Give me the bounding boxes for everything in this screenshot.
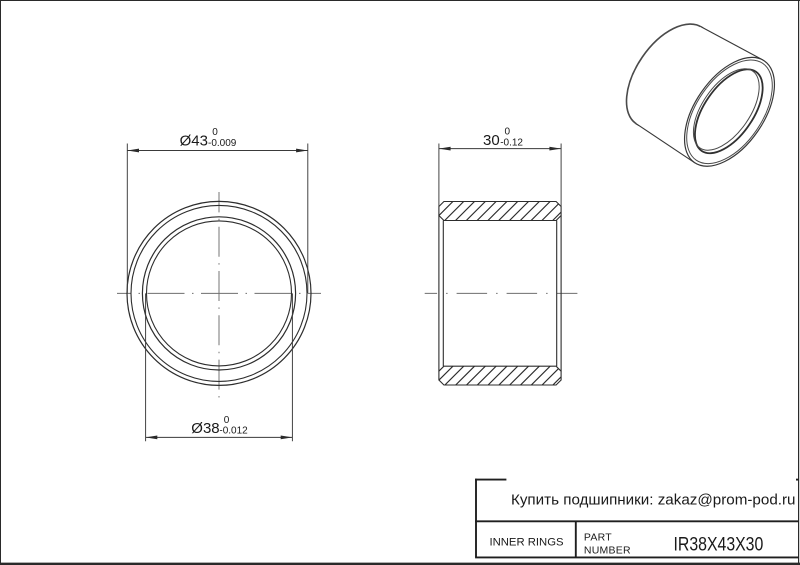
svg-text:-0.009: -0.009 (208, 138, 237, 149)
svg-text:0: 0 (212, 127, 218, 138)
svg-text:Ø38: Ø38 (191, 420, 219, 437)
svg-text:-0.12: -0.12 (500, 137, 523, 148)
svg-text:Купить подшипники: zakaz@prom-: Купить подшипники: zakaz@prom-pod.ru (511, 492, 796, 509)
svg-text:Ø43: Ø43 (180, 133, 208, 150)
svg-text:IR38X43X30: IR38X43X30 (674, 533, 764, 555)
svg-text:0: 0 (224, 415, 230, 426)
svg-text:PART: PART (584, 531, 612, 543)
svg-text:-0.012: -0.012 (219, 426, 248, 437)
svg-text:INNER RINGS: INNER RINGS (489, 537, 564, 549)
svg-text:NUMBER: NUMBER (584, 545, 631, 557)
svg-text:30: 30 (483, 132, 500, 149)
svg-text:0: 0 (505, 127, 511, 138)
